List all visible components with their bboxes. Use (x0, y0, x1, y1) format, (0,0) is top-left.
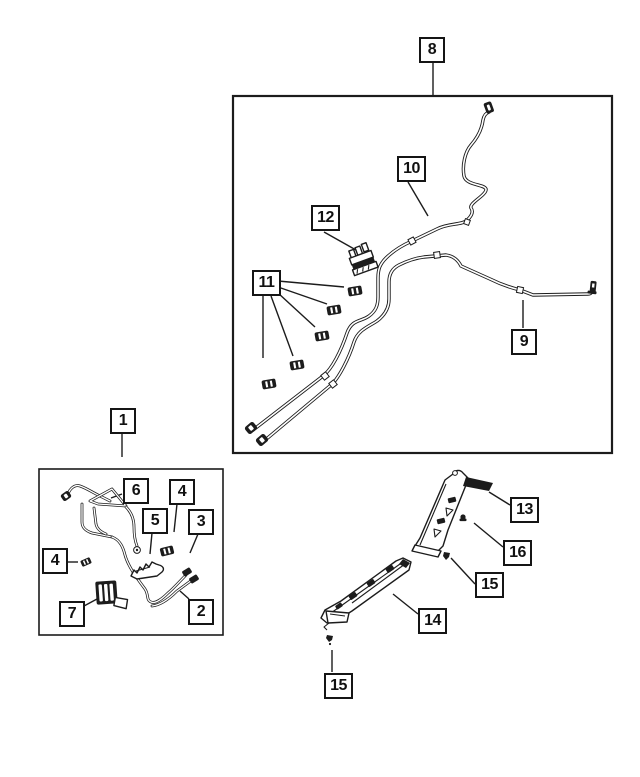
callout-13[interactable]: 13 (510, 497, 539, 523)
callout-6[interactable]: 6 (123, 478, 149, 504)
callout-4-upper[interactable]: 4 (169, 479, 195, 505)
serrated-clip-5-drawing (131, 562, 163, 579)
callout-15-upper[interactable]: 15 (475, 572, 504, 598)
line-union-fittings (321, 219, 524, 389)
bolt-15-upper-drawing (443, 552, 450, 560)
callout-2[interactable]: 2 (188, 599, 214, 625)
fuel-line-9-drawing (264, 255, 593, 441)
clip-3-drawing (160, 545, 175, 557)
shield-14-drawing (321, 558, 411, 630)
callout-15-lower[interactable]: 15 (324, 673, 353, 699)
fuel-line-lower-connectors (244, 421, 269, 447)
bolt-16-drawing (460, 514, 467, 521)
callout-16[interactable]: 16 (503, 540, 532, 566)
bracket-7-drawing (95, 580, 128, 611)
callout-14[interactable]: 14 (418, 608, 447, 634)
callout-5[interactable]: 5 (142, 508, 168, 534)
retainer-clips-11 (261, 285, 362, 389)
fuel-line-top-connector (483, 101, 494, 114)
clip-4-left-drawing (80, 557, 92, 567)
fuel-line-right-connector (587, 281, 597, 295)
bolt-15-lower-drawing (326, 635, 333, 645)
callout-7[interactable]: 7 (59, 601, 85, 627)
callout-11[interactable]: 11 (252, 270, 281, 296)
fuel-line-10-drawing (253, 112, 489, 430)
callout-1[interactable]: 1 (110, 408, 136, 434)
parts-diagram-page: 8 10 12 11 9 1 6 4 5 3 4 7 2 13 16 15 14… (0, 0, 640, 777)
callout-8[interactable]: 8 (419, 37, 445, 63)
callout-12[interactable]: 12 (311, 205, 340, 231)
diagram-canvas (0, 0, 640, 777)
callout-3[interactable]: 3 (188, 509, 214, 535)
shield-13-drawing (412, 470, 493, 557)
callout-10[interactable]: 10 (397, 156, 426, 182)
callout-9[interactable]: 9 (511, 329, 537, 355)
callout-4-left[interactable]: 4 (42, 548, 68, 574)
